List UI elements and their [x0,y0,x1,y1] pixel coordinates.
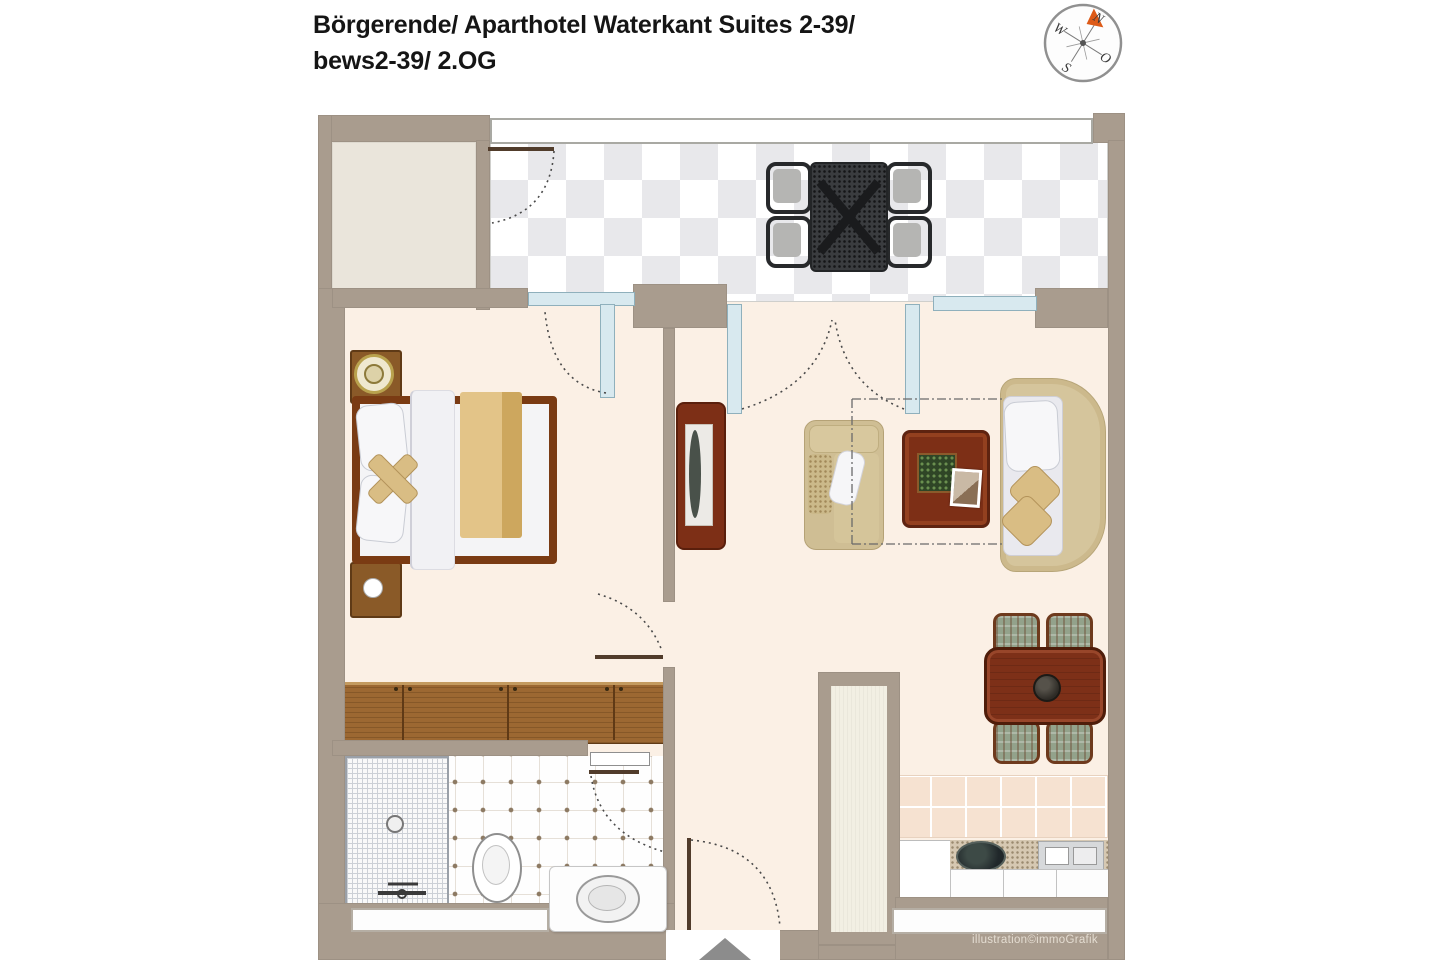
compass-rose-icon: N O S W [1040,0,1126,86]
bathroom-sink-basin [588,885,626,911]
entrance-arrow-icon [699,938,751,960]
sofa [1000,378,1106,572]
coffee-table [902,430,990,528]
cabinet-divider [1003,870,1004,897]
sofa-pillow-white [1003,400,1061,473]
balcony-chair [766,162,812,214]
wall-pillar [633,284,727,328]
balcony-chair-seat [773,223,801,257]
bed-duvet-fold [410,390,455,570]
wall-niche-top [318,115,490,142]
balcony-chair [886,162,932,214]
armchair [804,420,884,550]
wall-top-right-block [1093,113,1125,143]
floorplan-page: Börgerende/ Aparthotel Waterkant Suites … [0,0,1440,960]
page-title: Börgerende/ Aparthotel Waterkant Suites … [313,8,1073,79]
bathroom-window [351,908,549,932]
wardrobe-handle [605,687,609,691]
shower-drain [386,815,404,833]
balcony-railing [490,118,1093,144]
wall-niche-right [476,140,490,310]
wardrobe-handle [408,687,412,691]
dining-chair [993,720,1040,764]
balcony-chair [766,216,812,268]
balcony-chair-seat [893,223,921,257]
stove-burner [1045,847,1069,865]
storage-niche-floor [332,142,476,308]
dining-table [984,647,1106,725]
french-door-panel-right [905,304,920,414]
kitchen-cabinets [950,869,1110,900]
wardrobe-sideboard [332,682,665,744]
bathroom-vanity [549,866,667,932]
tv-sideboard [676,402,726,550]
armchair-back [809,425,879,453]
wall-niche-left [318,115,332,295]
bedroom-balcony-door-panel [600,304,615,398]
illustration-credit: illustration©immoGrafik [972,934,1098,946]
wall-interior-bedroom [663,328,675,602]
kitchen-sink [956,841,1006,872]
wardrobe-handle [513,687,517,691]
wall-right [1108,140,1125,960]
kitchen-window [892,908,1107,934]
balcony-chair-seat [893,169,921,203]
wall-left [318,288,345,960]
nightstand-cup [363,578,383,598]
title-line-1: Börgerende/ Aparthotel Waterkant Suites … [313,8,1073,44]
table-photo [950,468,983,508]
balcony-chair [886,216,932,268]
balcony-table [810,162,888,272]
toilet-bowl [482,845,510,885]
tv-screen [689,430,701,518]
wardrobe-handle [619,687,623,691]
wall-bedroom-top [332,288,528,308]
french-door-panel-left [727,304,742,414]
cabinet-divider [1056,870,1057,897]
wall-living-top-right [1035,288,1108,328]
wardrobe-divider [507,685,509,740]
wardrobe-divider [613,685,615,740]
wardrobe-handle [394,687,398,691]
bed-runner-blanket [460,392,522,538]
wardrobe-handle [499,687,503,691]
armchair-side-pillow [808,454,832,514]
wardrobe-divider [402,685,404,740]
closet-interior [831,686,887,932]
bedroom-balcony-door-sill [528,292,635,306]
stove-burner [1073,847,1097,865]
kitchen-wall-tiles [895,775,1108,838]
dining-chair [1046,720,1093,764]
bedside-lamp [354,354,394,394]
wall-bathroom-north [332,740,588,756]
lamp-shade [364,364,384,384]
wall-closet-bottom [818,945,900,960]
toilet [472,833,522,903]
kitchen-stove [1038,841,1104,870]
kitchen-fridge [897,840,951,898]
living-fixed-window [933,296,1037,311]
balcony-chair-seat [773,169,801,203]
towel-rail [590,752,650,766]
title-line-2: bews2-39/ 2.OG [313,44,1073,80]
dining-table-bowl [1033,674,1061,702]
